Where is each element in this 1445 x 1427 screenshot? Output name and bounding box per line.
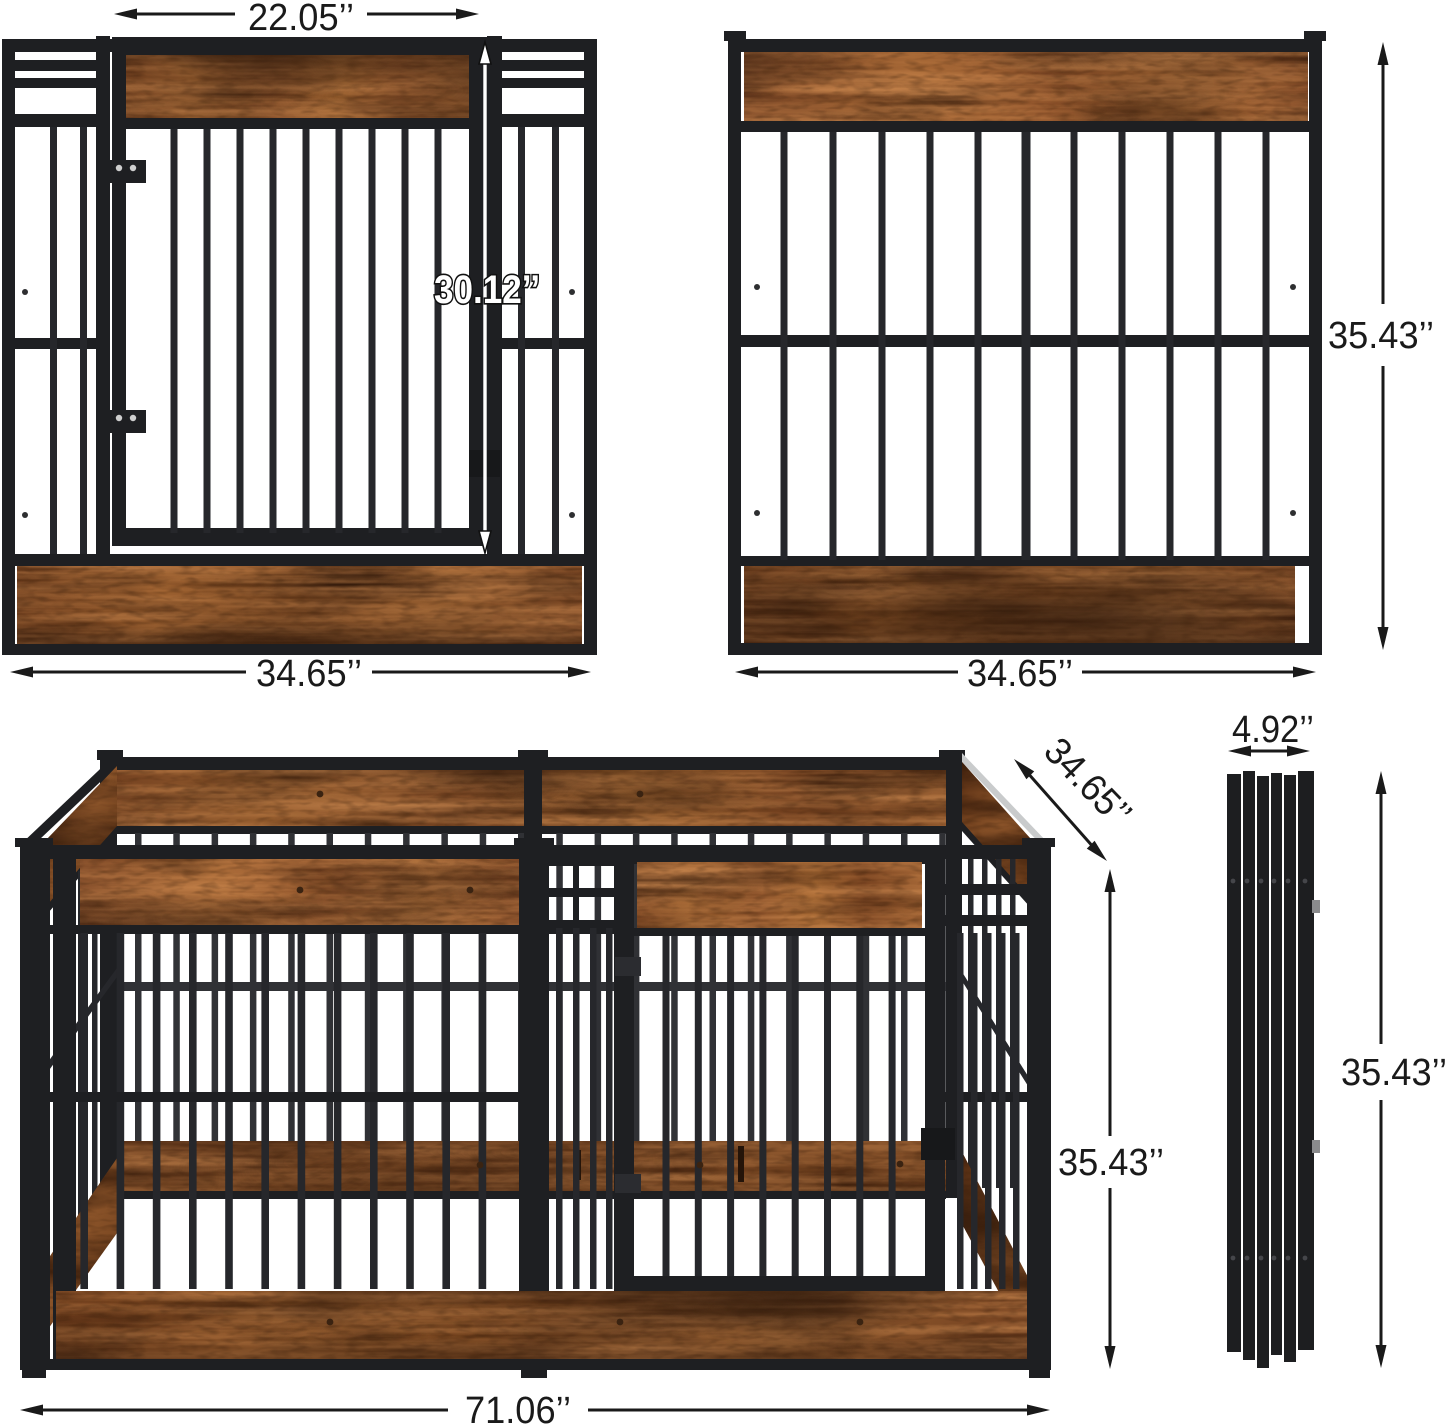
svg-text:34.65’’: 34.65’’: [967, 653, 1073, 695]
svg-text:35.43’’: 35.43’’: [1058, 1142, 1164, 1184]
svg-text:34.65’’: 34.65’’: [256, 653, 362, 695]
svg-text:35.43’’: 35.43’’: [1341, 1052, 1445, 1094]
svg-text:35.43’’: 35.43’’: [1328, 315, 1434, 357]
svg-text:4.92’’: 4.92’’: [1232, 709, 1314, 751]
svg-text:71.06’’: 71.06’’: [465, 1390, 571, 1427]
svg-text:30.12’’: 30.12’’: [434, 268, 540, 312]
svg-text:22.05’’: 22.05’’: [248, 0, 354, 39]
